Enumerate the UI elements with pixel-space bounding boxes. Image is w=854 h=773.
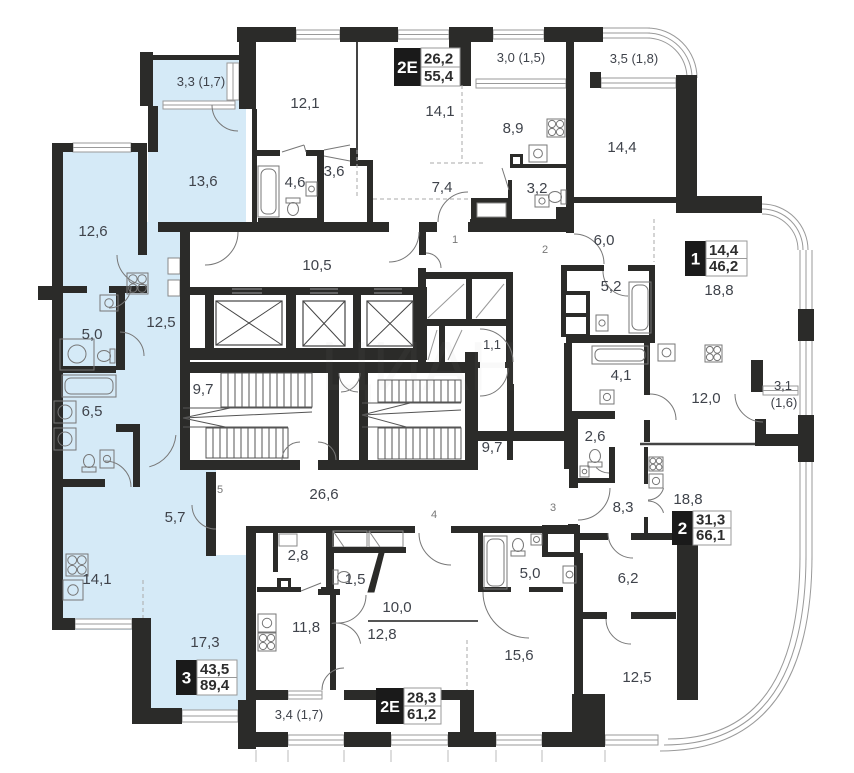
svg-text:8,9: 8,9 [503, 120, 524, 137]
svg-text:12,6: 12,6 [78, 223, 107, 240]
svg-text:31,3: 31,3 [696, 512, 725, 529]
svg-text:46,2: 46,2 [709, 258, 738, 275]
svg-text:3: 3 [550, 502, 556, 514]
svg-text:6,0: 6,0 [594, 232, 615, 249]
svg-text:2Е: 2Е [380, 699, 400, 716]
svg-text:8,3: 8,3 [613, 499, 634, 516]
svg-text:4: 4 [431, 509, 437, 521]
svg-text:4,6: 4,6 [285, 174, 306, 191]
svg-text:55,4: 55,4 [424, 68, 454, 85]
svg-text:12,0: 12,0 [691, 390, 720, 407]
svg-text:5,2: 5,2 [601, 278, 622, 295]
svg-text:15,6: 15,6 [504, 647, 533, 664]
svg-text:43,5: 43,5 [200, 661, 229, 678]
svg-text:14,1: 14,1 [425, 103, 454, 120]
svg-text:28,3: 28,3 [407, 690, 436, 707]
svg-text:3,3 (1,7): 3,3 (1,7) [177, 74, 225, 89]
svg-text:5,7: 5,7 [165, 509, 186, 526]
svg-text:13,6: 13,6 [188, 173, 217, 190]
svg-text:3,1: 3,1 [774, 378, 792, 393]
svg-text:3: 3 [182, 669, 191, 688]
svg-text:1: 1 [691, 250, 700, 269]
svg-text:12,8: 12,8 [367, 626, 396, 643]
svg-text:5: 5 [217, 484, 223, 496]
svg-text:6,5: 6,5 [82, 403, 103, 420]
svg-text:10,5: 10,5 [302, 257, 331, 274]
svg-text:14,4: 14,4 [709, 242, 739, 259]
svg-text:5,0: 5,0 [82, 326, 103, 343]
svg-text:12,5: 12,5 [146, 314, 175, 331]
svg-text:3,2: 3,2 [527, 180, 548, 197]
svg-text:61,2: 61,2 [407, 706, 436, 723]
svg-text:9,7: 9,7 [482, 439, 503, 456]
svg-text:9,7: 9,7 [193, 381, 214, 398]
svg-text:3,4 (1,7): 3,4 (1,7) [275, 707, 323, 722]
svg-text:4,1: 4,1 [611, 367, 632, 384]
svg-text:ЦИАН: ЦИАН [320, 327, 519, 405]
svg-text:17,3: 17,3 [190, 634, 219, 651]
svg-text:3,0 (1,5): 3,0 (1,5) [497, 50, 545, 65]
svg-text:3,5 (1,8): 3,5 (1,8) [610, 51, 658, 66]
svg-text:2: 2 [542, 244, 548, 256]
svg-text:12,5: 12,5 [622, 669, 651, 686]
svg-text:1,5: 1,5 [345, 571, 366, 588]
svg-text:6,2: 6,2 [618, 570, 639, 587]
svg-text:11,8: 11,8 [292, 619, 320, 636]
svg-text:2,6: 2,6 [585, 428, 606, 445]
svg-text:2,8: 2,8 [288, 547, 309, 564]
svg-text:1: 1 [452, 234, 458, 246]
svg-text:14,1: 14,1 [82, 571, 111, 588]
svg-text:26,6: 26,6 [309, 486, 338, 503]
svg-text:5,0: 5,0 [520, 565, 541, 582]
svg-text:66,1: 66,1 [696, 527, 725, 544]
svg-text:14,4: 14,4 [607, 139, 636, 156]
svg-text:3,6: 3,6 [324, 163, 345, 180]
svg-text:10,0: 10,0 [382, 599, 411, 616]
svg-text:(1,6): (1,6) [771, 395, 798, 410]
svg-text:12,1: 12,1 [290, 95, 319, 112]
svg-text:2Е: 2Е [397, 58, 418, 77]
svg-text:18,8: 18,8 [673, 491, 702, 508]
svg-text:2: 2 [678, 519, 687, 538]
svg-text:18,8: 18,8 [704, 282, 733, 299]
svg-text:7,4: 7,4 [432, 179, 453, 196]
svg-text:26,2: 26,2 [424, 51, 453, 68]
svg-text:89,4: 89,4 [200, 677, 230, 694]
